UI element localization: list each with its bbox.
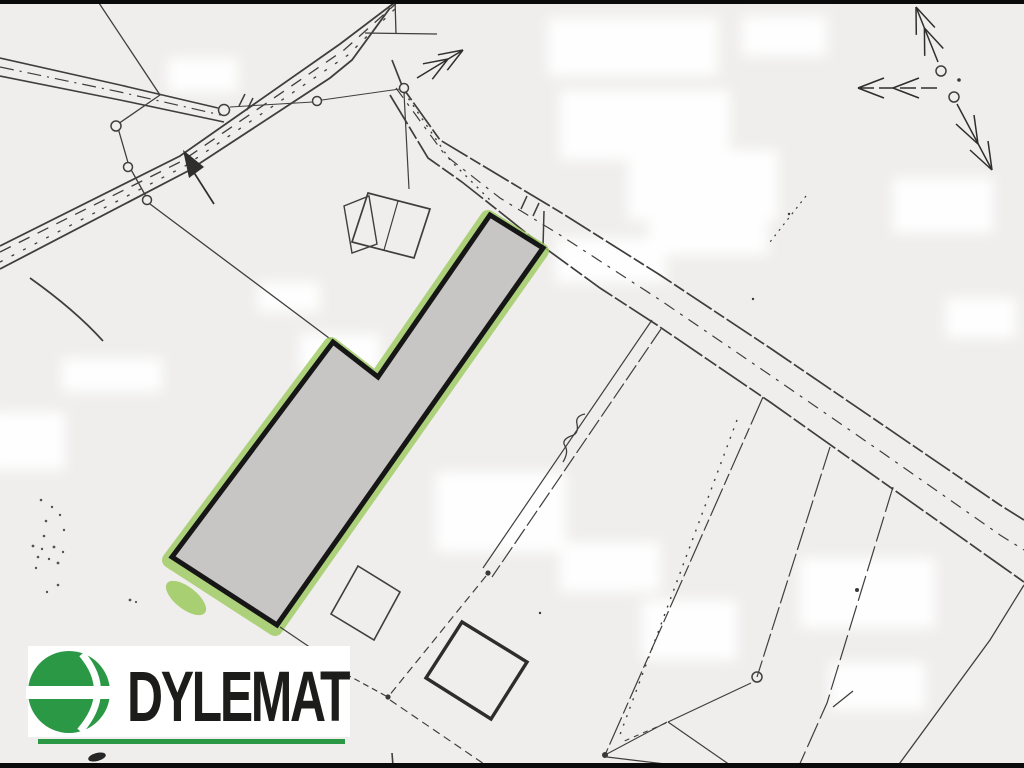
logo-wordmark: DYLEMAT bbox=[127, 656, 361, 741]
globe-icon bbox=[26, 649, 126, 739]
cadastral-map-page: DYLEMAT bbox=[0, 0, 1024, 768]
logo-underline bbox=[38, 739, 345, 744]
bottom-letterbox-bar bbox=[0, 763, 1024, 768]
top-letterbox-bar bbox=[0, 0, 1024, 4]
